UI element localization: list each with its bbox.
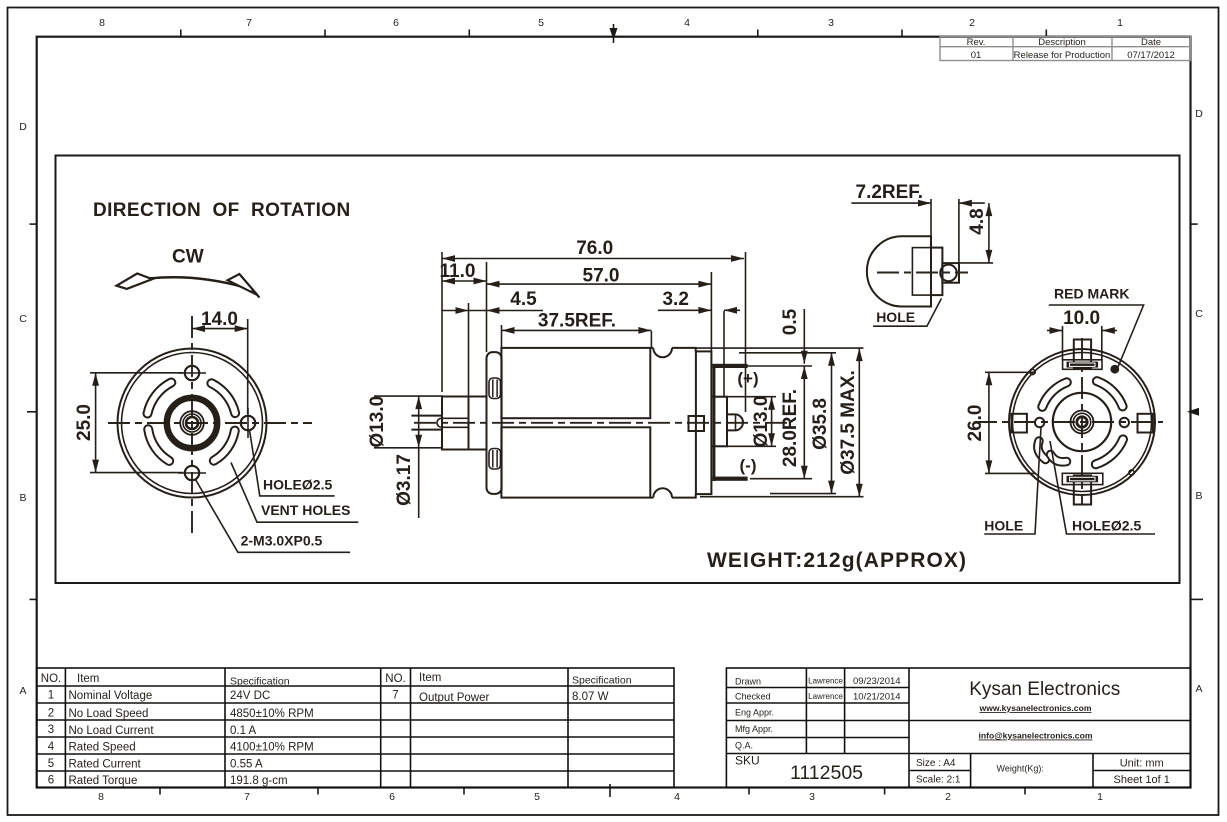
svg-text:8.07 W: 8.07 W	[572, 691, 609, 703]
svg-text:6: 6	[389, 791, 395, 803]
svg-text:Q.A.: Q.A.	[735, 741, 753, 751]
svg-text:Lawrence: Lawrence	[808, 677, 843, 686]
svg-text:Checked: Checked	[735, 692, 771, 702]
svg-text:4850±10% RPM: 4850±10% RPM	[230, 708, 314, 720]
svg-text:C: C	[1195, 308, 1203, 320]
svg-text:8: 8	[99, 17, 105, 29]
svg-text:Rated Torque: Rated Torque	[69, 775, 138, 787]
svg-text:0.5: 0.5	[780, 308, 801, 335]
svg-text:2: 2	[969, 17, 975, 29]
svg-text:No Load Speed: No Load Speed	[69, 708, 149, 720]
svg-text:HOLE: HOLE	[876, 309, 915, 325]
svg-text:No Load Current: No Load Current	[69, 725, 155, 737]
svg-text:Nominal Voltage: Nominal Voltage	[69, 690, 153, 702]
svg-text:Description: Description	[1038, 37, 1086, 48]
svg-text:1: 1	[48, 690, 54, 702]
svg-text:Sheet 1of 1: Sheet 1of 1	[1114, 774, 1170, 786]
svg-text:4.8: 4.8	[967, 208, 988, 234]
svg-text:Specification: Specification	[572, 675, 632, 687]
svg-text:191.8 g-cm: 191.8 g-cm	[230, 775, 288, 787]
svg-text:4: 4	[48, 741, 55, 753]
svg-text:5: 5	[538, 17, 544, 29]
svg-text:6: 6	[48, 775, 54, 787]
svg-text:1: 1	[1117, 17, 1123, 29]
svg-text:Unit: mm: Unit: mm	[1120, 758, 1164, 770]
svg-text:3: 3	[828, 17, 834, 29]
svg-text:Release for Production: Release for Production	[1014, 50, 1111, 61]
svg-text:Item: Item	[419, 672, 441, 684]
svg-text:6: 6	[393, 17, 399, 29]
svg-text:VENT HOLES: VENT HOLES	[261, 502, 350, 518]
svg-text:Date: Date	[1141, 37, 1161, 48]
svg-text:14.0: 14.0	[201, 309, 238, 330]
svg-text:B: B	[19, 492, 26, 504]
svg-text:3: 3	[809, 791, 815, 803]
svg-text:SKU: SKU	[735, 754, 760, 768]
svg-text:7: 7	[244, 791, 250, 803]
svg-text:D: D	[19, 121, 27, 133]
svg-text:8: 8	[98, 791, 104, 803]
svg-text:24V DC: 24V DC	[230, 690, 270, 702]
svg-text:C: C	[19, 313, 27, 325]
svg-text:37.5REF.: 37.5REF.	[538, 311, 616, 332]
svg-text:www.kysanelectronics.com: www.kysanelectronics.com	[979, 703, 1092, 713]
svg-text:Rated Speed: Rated Speed	[69, 742, 136, 754]
svg-text:76.0: 76.0	[576, 238, 613, 259]
svg-text:0.1 A: 0.1 A	[230, 725, 257, 737]
svg-text:3.2: 3.2	[662, 289, 688, 310]
svg-text:Ø13.0: Ø13.0	[367, 396, 388, 448]
svg-text:4: 4	[674, 791, 680, 803]
svg-text:7.2REF.: 7.2REF.	[856, 182, 924, 203]
svg-text:11.0: 11.0	[440, 261, 476, 282]
svg-text:Ø35.8: Ø35.8	[810, 398, 831, 450]
svg-text:Rated Current: Rated Current	[69, 759, 142, 771]
svg-text:(-): (-)	[740, 456, 757, 475]
svg-text:4: 4	[684, 17, 690, 29]
svg-text:0.55 A: 0.55 A	[230, 759, 263, 771]
svg-text:4.5: 4.5	[510, 289, 537, 310]
svg-text:CW: CW	[172, 247, 204, 268]
svg-text:D: D	[1195, 108, 1203, 120]
svg-text:Weight(Kg):: Weight(Kg):	[997, 764, 1044, 774]
svg-text:Size : A4: Size : A4	[916, 758, 956, 769]
svg-text:10/21/2014: 10/21/2014	[853, 692, 901, 703]
svg-text:2-M3.0XP0.5: 2-M3.0XP0.5	[241, 533, 323, 549]
svg-text:(+): (+)	[737, 369, 758, 388]
svg-text:NO.: NO.	[385, 673, 405, 685]
svg-text:RED MARK: RED MARK	[1054, 286, 1129, 302]
svg-text:Specification: Specification	[230, 676, 290, 688]
svg-text:Mfg Appr.: Mfg Appr.	[735, 724, 773, 734]
svg-text:7: 7	[392, 690, 398, 702]
svg-text:Output Power: Output Power	[419, 692, 489, 704]
svg-text:Lawrence: Lawrence	[808, 692, 843, 701]
svg-text:4100±10% RPM: 4100±10% RPM	[230, 742, 314, 754]
svg-text:01: 01	[971, 50, 982, 61]
svg-text:5: 5	[534, 791, 540, 803]
svg-text:Scale: 2:1: Scale: 2:1	[916, 775, 961, 786]
svg-text:07/17/2012: 07/17/2012	[1127, 50, 1175, 61]
svg-text:28.0REF.: 28.0REF.	[780, 389, 801, 467]
svg-text:Item: Item	[77, 673, 99, 685]
svg-text:3: 3	[48, 724, 54, 736]
svg-text:2: 2	[945, 791, 951, 803]
svg-text:7: 7	[246, 17, 252, 29]
svg-text:1112505: 1112505	[790, 762, 863, 784]
svg-text:Kysan Electronics: Kysan Electronics	[969, 679, 1120, 700]
svg-text:HOLEØ2.5: HOLEØ2.5	[1072, 518, 1141, 534]
svg-text:57.0: 57.0	[583, 265, 620, 286]
svg-text:Ø37.5 MAX.: Ø37.5 MAX.	[838, 370, 859, 475]
svg-text:Ø13.0: Ø13.0	[751, 396, 772, 448]
svg-text:Ø3.17: Ø3.17	[394, 454, 415, 506]
svg-text:NO.: NO.	[41, 673, 61, 685]
svg-text:HOLE: HOLE	[984, 518, 1023, 534]
svg-text:WEIGHT:212g(APPROX): WEIGHT:212g(APPROX)	[707, 549, 967, 572]
svg-text:25.0: 25.0	[74, 404, 95, 441]
svg-text:26.0: 26.0	[965, 405, 986, 442]
svg-text:A: A	[19, 685, 26, 697]
svg-text:Rev.: Rev.	[967, 37, 986, 48]
svg-text:info@kysanelectronics.com: info@kysanelectronics.com	[979, 731, 1093, 741]
svg-text:09/23/2014: 09/23/2014	[853, 676, 901, 687]
svg-text:A: A	[1195, 683, 1202, 695]
svg-text:10.0: 10.0	[1063, 308, 1100, 329]
svg-text:5: 5	[48, 758, 54, 770]
svg-text:HOLEØ2.5: HOLEØ2.5	[263, 477, 332, 493]
svg-text:2: 2	[48, 708, 54, 720]
svg-text:Drawn: Drawn	[735, 677, 761, 687]
svg-text:B: B	[1195, 490, 1202, 502]
svg-text:DIRECTION OF ROTATION: DIRECTION OF ROTATION	[93, 200, 351, 221]
svg-text:Eng Appr.: Eng Appr.	[735, 708, 774, 718]
svg-text:1: 1	[1097, 791, 1103, 803]
